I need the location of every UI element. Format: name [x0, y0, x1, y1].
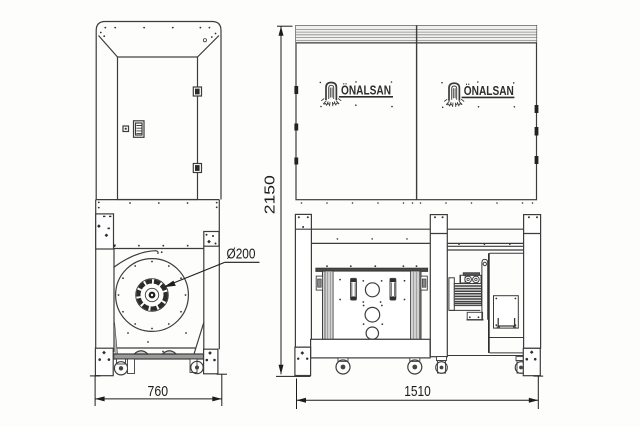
svg-text:ÖNALSAN: ÖNALSAN	[464, 83, 514, 98]
svg-text:1510: 1510	[404, 383, 431, 400]
svg-text:760: 760	[148, 383, 169, 400]
svg-text:Ø200: Ø200	[227, 245, 256, 262]
svg-text:2150: 2150	[262, 175, 279, 214]
svg-text:ÖNALSAN: ÖNALSAN	[341, 83, 391, 98]
